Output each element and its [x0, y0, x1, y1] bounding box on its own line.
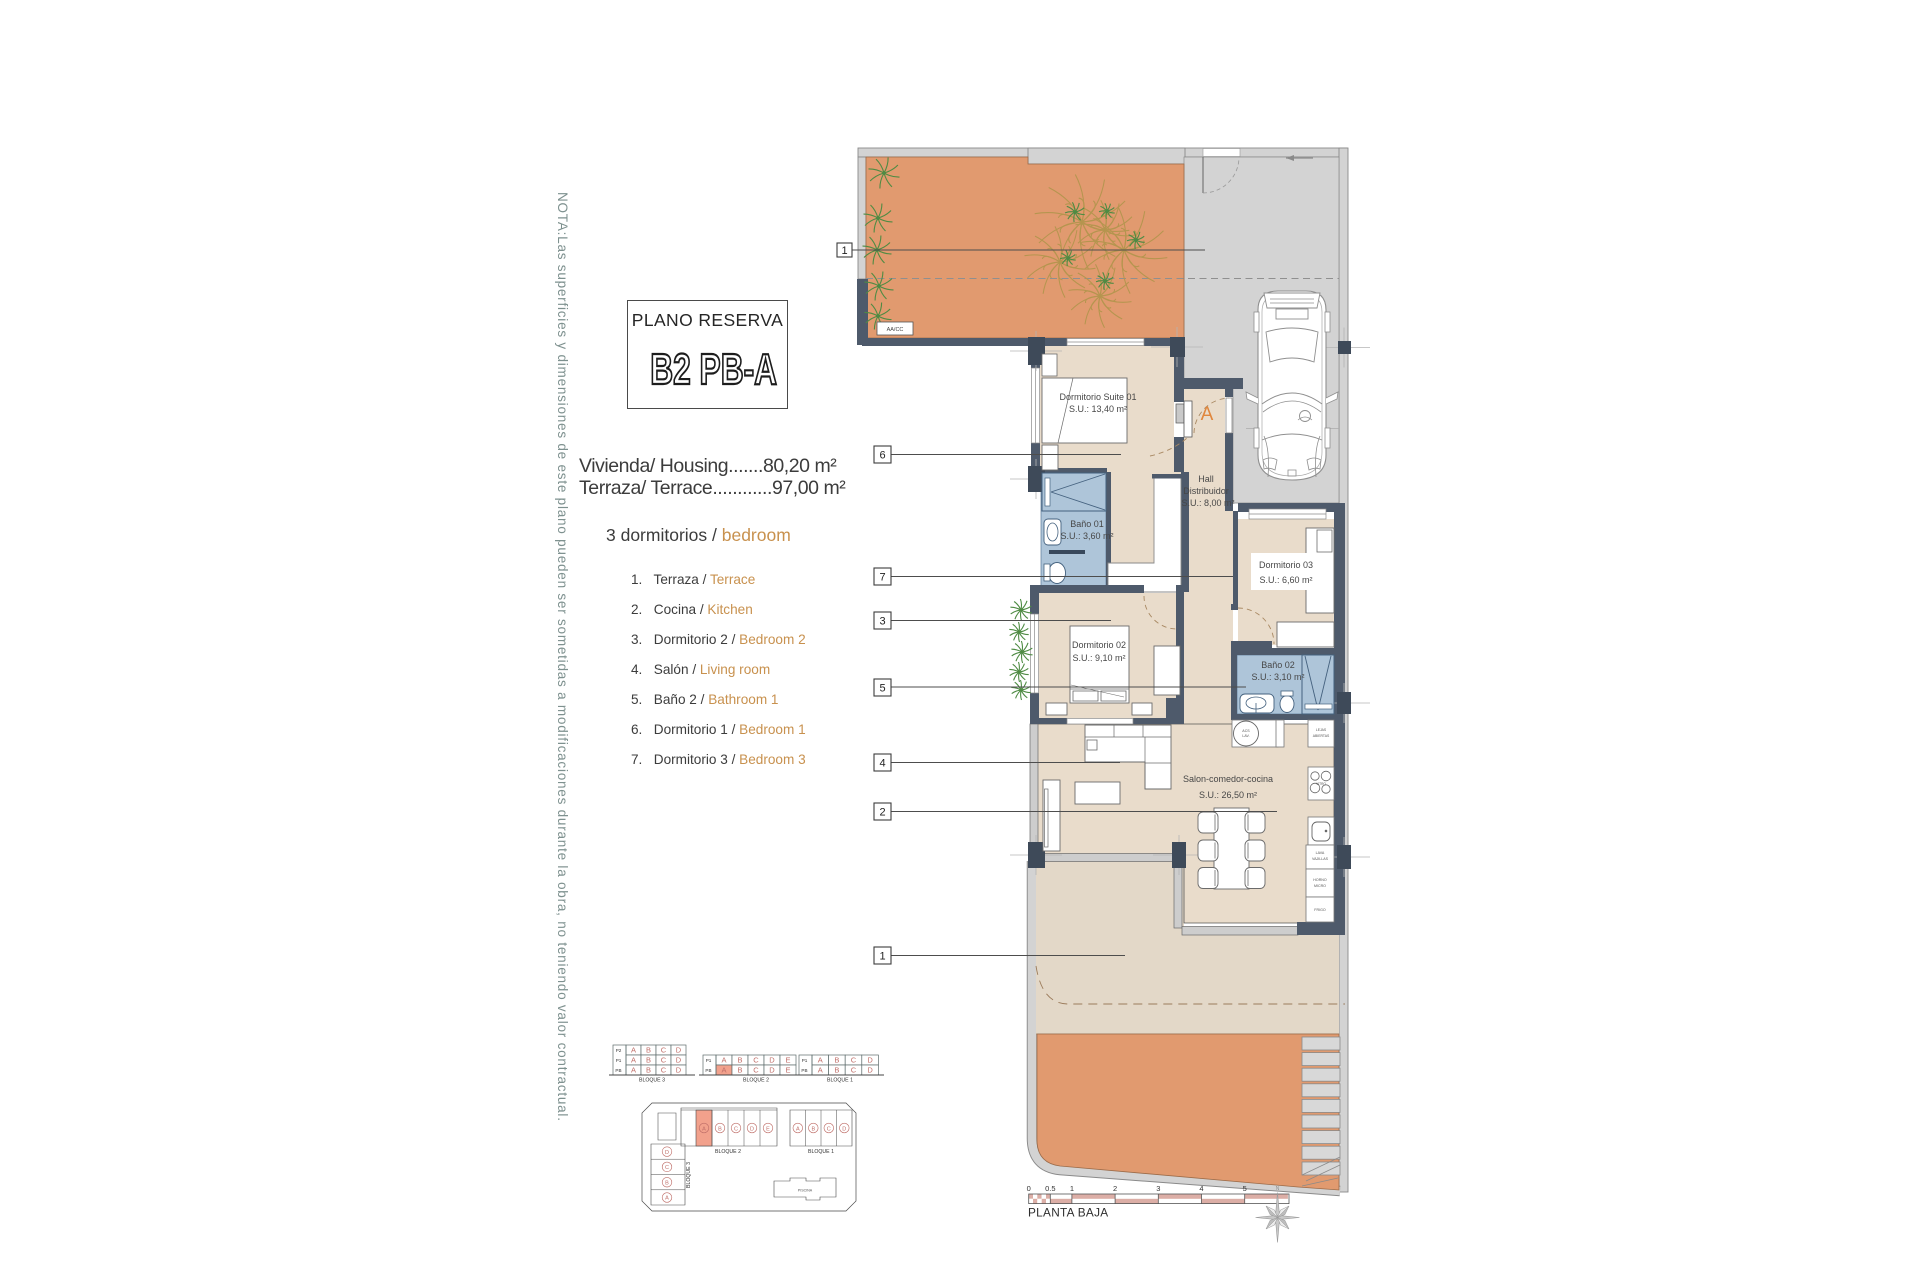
svg-text:C: C — [851, 1066, 857, 1075]
svg-text:C: C — [661, 1066, 667, 1075]
svg-text:C: C — [851, 1056, 857, 1065]
svg-text:7: 7 — [879, 571, 885, 583]
svg-text:BLOQUE 2: BLOQUE 2 — [715, 1149, 741, 1155]
svg-text:C: C — [753, 1066, 759, 1075]
svg-text:S.U.: 3,60 m²: S.U.: 3,60 m² — [1060, 531, 1113, 541]
svg-text:BLOQUE 2: BLOQUE 2 — [743, 1078, 769, 1084]
svg-text:D: D — [867, 1066, 873, 1075]
svg-text:BLOQUE 1: BLOQUE 1 — [808, 1149, 834, 1155]
svg-text:Hall: Hall — [1198, 474, 1214, 484]
svg-text:P1: P1 — [706, 1058, 712, 1063]
svg-text:S.U.: 26,50 m²: S.U.: 26,50 m² — [1199, 790, 1257, 800]
svg-text:D: D — [769, 1066, 775, 1075]
svg-text:Dormitorio Suite 01: Dormitorio Suite 01 — [1059, 392, 1136, 402]
svg-text:N: N — [1276, 1186, 1280, 1192]
svg-text:3: 3 — [879, 615, 885, 627]
svg-text:B: B — [834, 1056, 839, 1065]
svg-text:C: C — [827, 1126, 831, 1132]
svg-text:B: B — [665, 1180, 669, 1186]
svg-text:B: B — [834, 1066, 839, 1075]
svg-text:Salon-comedor-cocina: Salon-comedor-cocina — [1183, 774, 1273, 784]
svg-text:HORNO: HORNO — [1313, 878, 1327, 882]
svg-text:A: A — [1201, 404, 1214, 425]
svg-text:B: B — [646, 1046, 651, 1055]
svg-text:C: C — [665, 1165, 669, 1171]
svg-text:B: B — [646, 1066, 651, 1075]
svg-text:P1: P1 — [802, 1058, 808, 1063]
svg-text:D: D — [676, 1046, 682, 1055]
svg-text:A: A — [721, 1056, 726, 1065]
svg-text:Baño 01: Baño 01 — [1070, 519, 1104, 529]
svg-text:0: 0 — [1027, 1184, 1031, 1193]
svg-text:D: D — [665, 1150, 669, 1156]
svg-text:MICRO: MICRO — [1314, 884, 1326, 888]
svg-text:A: A — [631, 1046, 636, 1055]
svg-text:PB: PB — [705, 1068, 711, 1073]
svg-text:S.U.: 3,10 m²: S.U.: 3,10 m² — [1251, 672, 1304, 682]
svg-text:LEJAS: LEJAS — [1316, 728, 1327, 732]
svg-text:A: A — [796, 1126, 800, 1132]
svg-text:D: D — [867, 1056, 873, 1065]
svg-text:P2: P2 — [616, 1048, 622, 1053]
svg-text:PISCINA: PISCINA — [798, 1189, 813, 1193]
svg-text:VAJILLAS: VAJILLAS — [1312, 857, 1329, 861]
svg-text:Dormitorio 03: Dormitorio 03 — [1259, 560, 1313, 570]
svg-text:B: B — [811, 1126, 815, 1132]
svg-text:E: E — [766, 1126, 770, 1132]
svg-text:1: 1 — [1070, 1184, 1074, 1193]
svg-text:LAV.: LAV. — [1242, 734, 1249, 738]
svg-text:E: E — [785, 1056, 790, 1065]
svg-text:2: 2 — [879, 806, 885, 818]
svg-text:C: C — [661, 1056, 667, 1065]
svg-text:2: 2 — [1113, 1184, 1117, 1193]
svg-text:Baño 02: Baño 02 — [1261, 660, 1295, 670]
svg-text:1: 1 — [841, 245, 847, 257]
svg-text:E: E — [785, 1066, 790, 1075]
svg-text:Distribuidor: Distribuidor — [1183, 486, 1229, 496]
svg-text:B: B — [737, 1066, 742, 1075]
svg-text:VITRO: VITRO — [1316, 782, 1326, 786]
svg-text:0.5: 0.5 — [1045, 1184, 1055, 1193]
svg-text:S.U.: 6,60 m²: S.U.: 6,60 m² — [1259, 575, 1312, 585]
svg-text:P1: P1 — [616, 1058, 622, 1063]
svg-text:4: 4 — [1199, 1184, 1203, 1193]
svg-text:D: D — [676, 1056, 682, 1065]
svg-text:AA/CC: AA/CC — [887, 327, 904, 333]
svg-text:D: D — [769, 1056, 775, 1065]
svg-text:PB: PB — [801, 1068, 807, 1073]
svg-text:BLOQUE 1: BLOQUE 1 — [827, 1078, 853, 1084]
svg-text:LAVA: LAVA — [1316, 851, 1325, 855]
svg-text:1: 1 — [879, 950, 885, 962]
svg-text:D: D — [842, 1126, 846, 1132]
svg-text:3: 3 — [1156, 1184, 1160, 1193]
svg-text:FRIGO: FRIGO — [1314, 908, 1326, 912]
svg-text:A: A — [702, 1126, 706, 1132]
svg-text:BLOQUE 3: BLOQUE 3 — [686, 1162, 692, 1188]
svg-text:4: 4 — [879, 757, 885, 769]
svg-text:C: C — [734, 1126, 738, 1132]
svg-text:Dormitorio 02: Dormitorio 02 — [1072, 640, 1126, 650]
svg-text:D: D — [750, 1126, 754, 1132]
svg-text:BLOQUE 3: BLOQUE 3 — [639, 1078, 665, 1084]
svg-text:5: 5 — [1243, 1184, 1247, 1193]
svg-text:B: B — [646, 1056, 651, 1065]
svg-text:ACS: ACS — [1242, 729, 1250, 733]
svg-text:A: A — [631, 1066, 636, 1075]
svg-text:B: B — [718, 1126, 722, 1132]
svg-text:D: D — [676, 1066, 682, 1075]
svg-text:S.U.: 13,40 m²: S.U.: 13,40 m² — [1069, 404, 1127, 414]
svg-text:A: A — [665, 1196, 669, 1202]
svg-text:5: 5 — [879, 682, 885, 694]
svg-text:A: A — [818, 1056, 823, 1065]
svg-text:A: A — [631, 1056, 636, 1065]
svg-text:B: B — [737, 1056, 742, 1065]
svg-text:S.U.: 8,00 m²: S.U.: 8,00 m² — [1181, 498, 1234, 508]
svg-text:S.U.: 9,10 m²: S.U.: 9,10 m² — [1072, 653, 1125, 663]
svg-text:C: C — [753, 1056, 759, 1065]
svg-text:ABIERTAS: ABIERTAS — [1313, 734, 1330, 738]
svg-text:C: C — [661, 1046, 667, 1055]
svg-text:A: A — [721, 1066, 726, 1075]
svg-text:PLANTA BAJA: PLANTA BAJA — [1028, 1206, 1108, 1220]
svg-text:A: A — [818, 1066, 823, 1075]
svg-text:6: 6 — [879, 449, 885, 461]
svg-text:PB: PB — [615, 1068, 621, 1073]
